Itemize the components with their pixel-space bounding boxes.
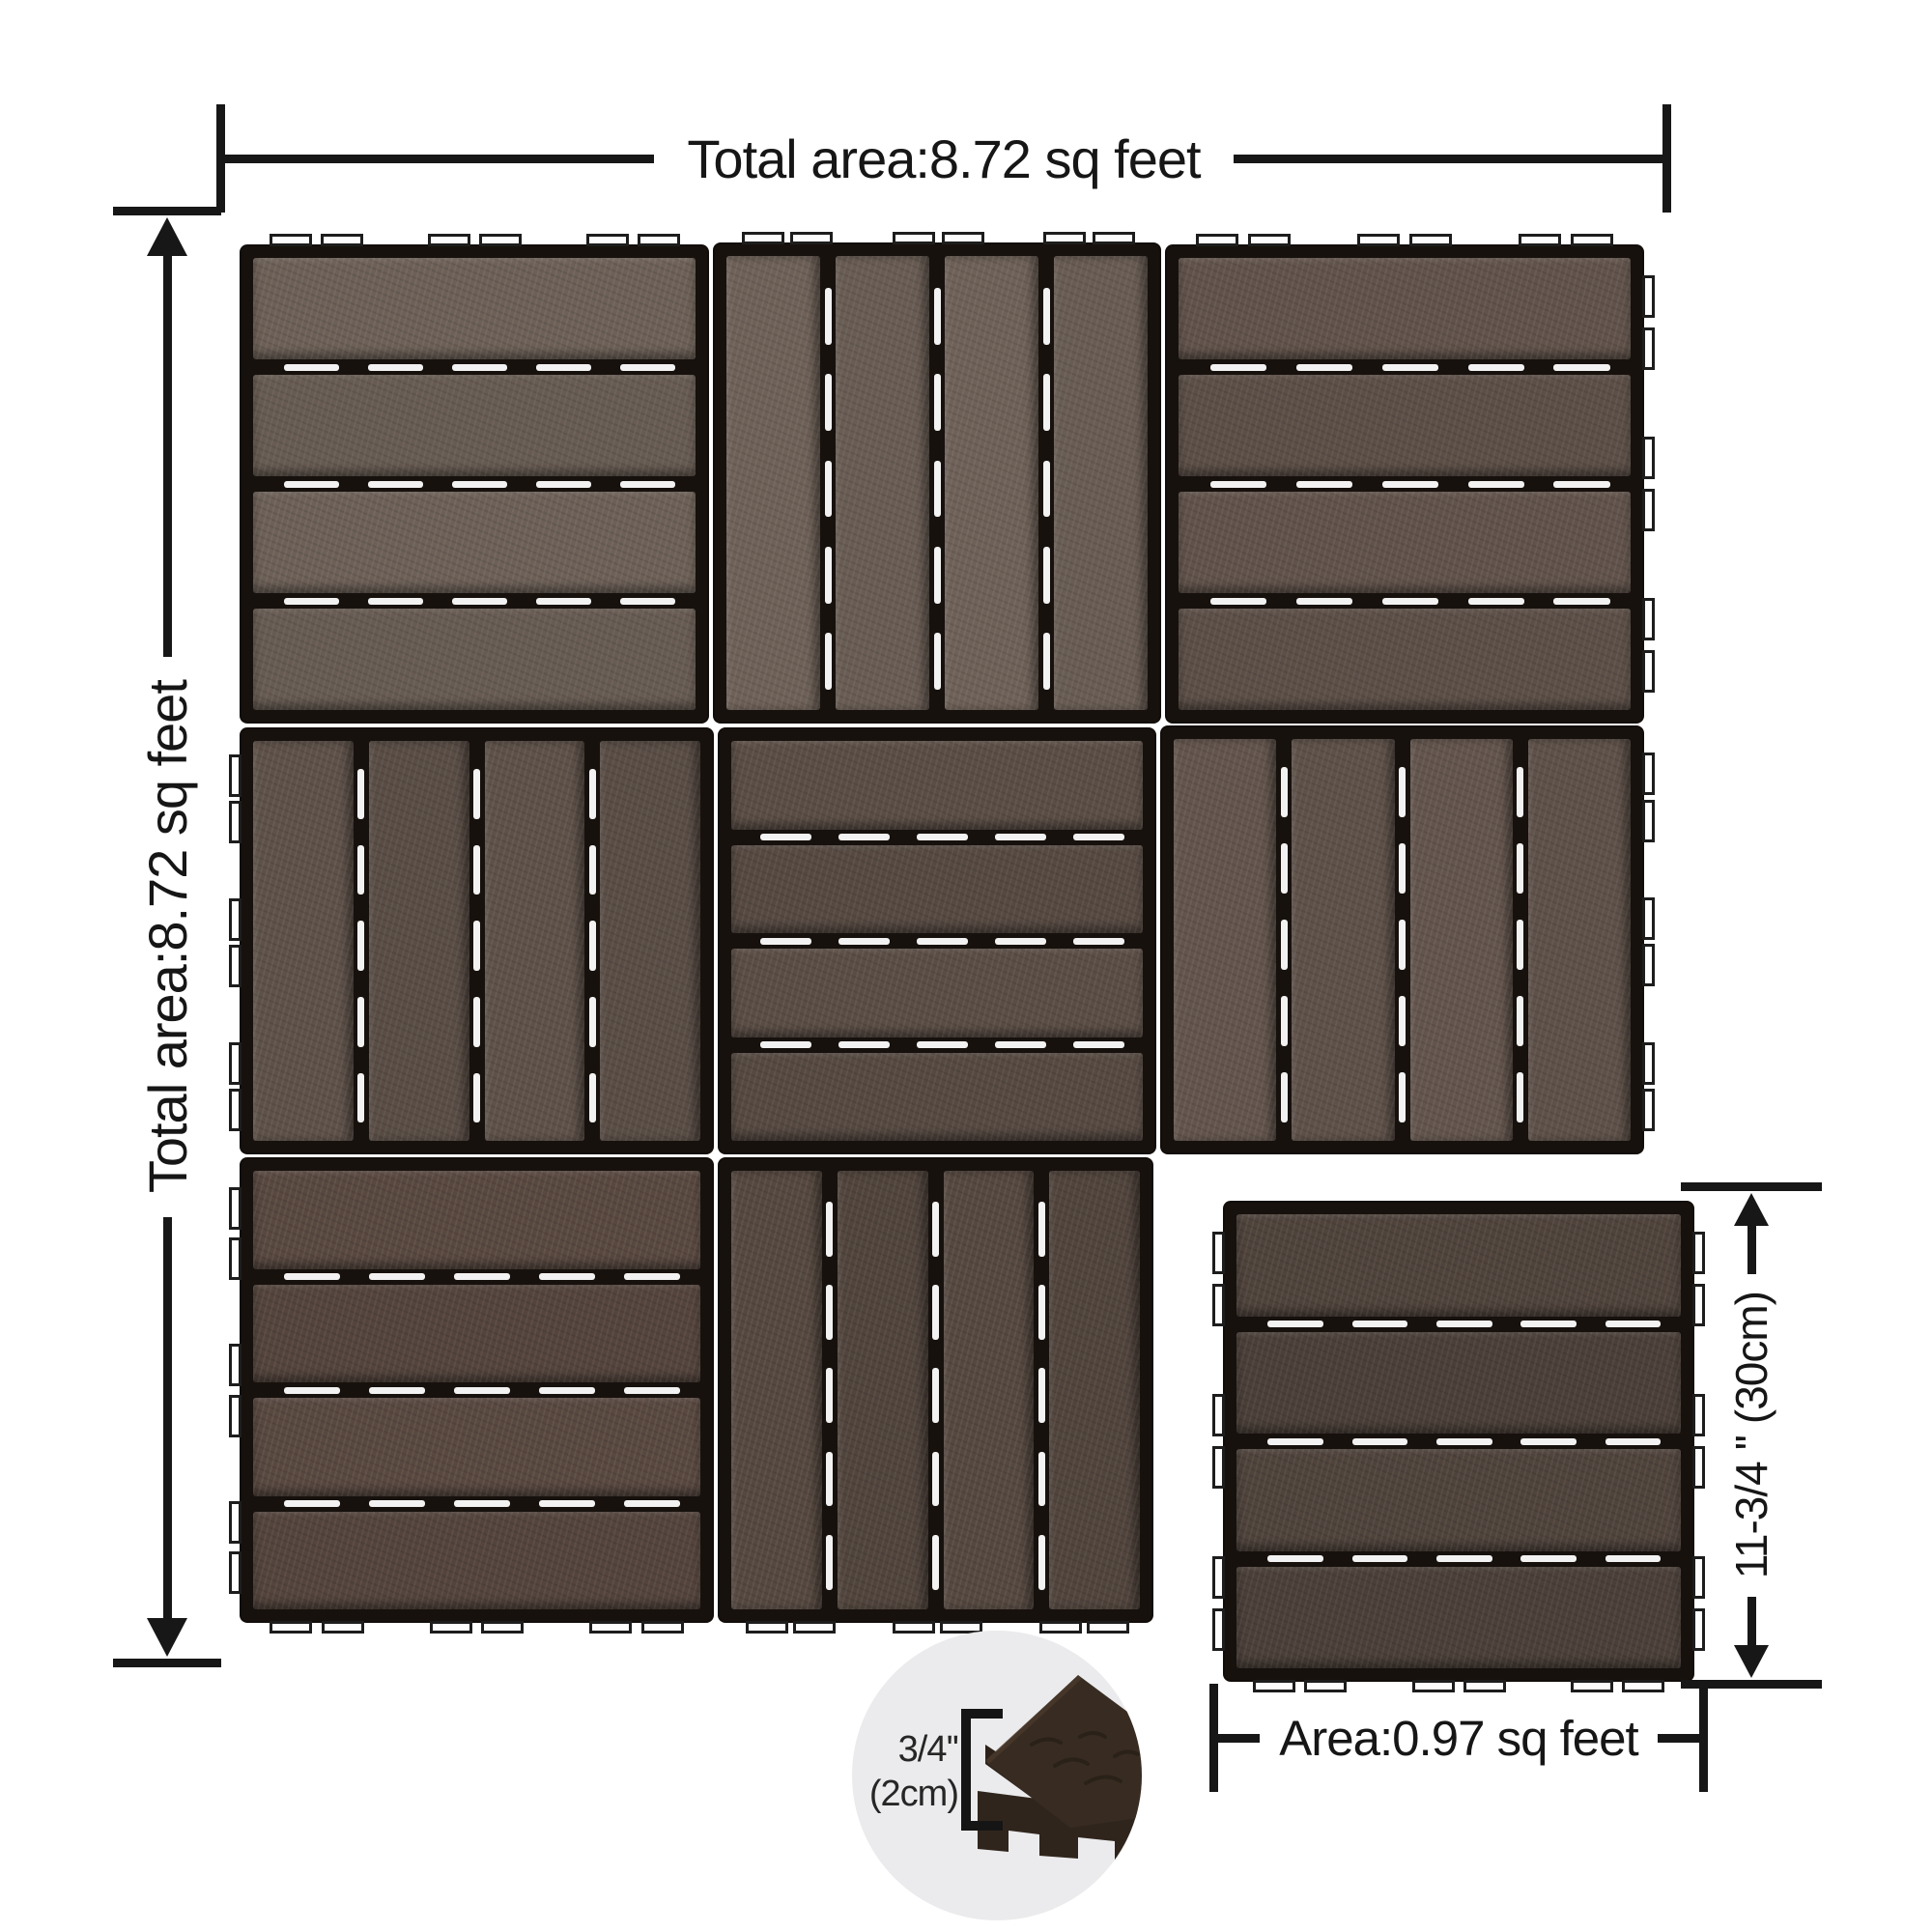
drain-slit — [473, 769, 480, 819]
drain-slit — [1468, 598, 1525, 605]
deck-tile-r1c2 — [715, 244, 1159, 722]
drain-slit — [1605, 1438, 1662, 1445]
connector-tab — [229, 1237, 241, 1280]
drain-slit — [284, 481, 339, 488]
drain-slit — [1517, 843, 1523, 894]
tile-slat — [253, 1398, 700, 1496]
tile-slat — [731, 741, 1143, 830]
connector-tab — [942, 232, 984, 244]
drain-slit — [1520, 1321, 1577, 1327]
tile-slat — [253, 1285, 700, 1383]
tile-height-label: 11-3/4 '' (30cm) — [1725, 1292, 1777, 1578]
drain-slit — [1267, 1321, 1323, 1327]
tile-slat — [945, 256, 1038, 710]
drain-slit — [624, 1500, 680, 1507]
drain-slit — [589, 921, 596, 971]
drain-slit — [620, 364, 675, 371]
dimension-line — [1234, 155, 1662, 163]
drain-slit — [826, 1452, 833, 1507]
connector-tab — [793, 1621, 836, 1634]
tile-slat — [1179, 492, 1631, 593]
drain-slit — [932, 1285, 939, 1340]
connector-tab — [1093, 232, 1135, 244]
drain-slit — [1073, 938, 1124, 945]
connector-tab — [742, 232, 784, 244]
total-area-top-dimension: Total area:8.72 sq feet — [216, 102, 1671, 214]
drain-slit — [357, 997, 364, 1047]
drain-slit — [1043, 547, 1050, 604]
drain-slit — [284, 1500, 340, 1507]
connector-tab — [481, 1621, 524, 1634]
tile-slat — [253, 1171, 700, 1269]
drain-slit — [452, 481, 507, 488]
connector-tab — [430, 1621, 472, 1634]
connector-tab — [1043, 232, 1086, 244]
connector-tab — [229, 1501, 241, 1544]
drain-slit — [1043, 633, 1050, 690]
drain-slit — [917, 938, 968, 945]
drain-slit — [1038, 1368, 1045, 1423]
connector-tab — [1642, 897, 1655, 940]
dimension-end-tick — [113, 207, 221, 215]
drain-slit — [1382, 598, 1439, 605]
dimension-end-tick — [1681, 1182, 1822, 1191]
drain-slit — [1517, 920, 1523, 970]
deck-tile-r2c3 — [1162, 727, 1642, 1152]
drain-slit — [473, 1073, 480, 1123]
drain-slit — [1399, 767, 1406, 817]
drain-slit — [1517, 996, 1523, 1046]
drain-slit — [1553, 364, 1610, 371]
tile-slat — [253, 741, 354, 1141]
connector-tab — [1642, 753, 1655, 795]
tile-slat — [1174, 739, 1276, 1141]
drain-slit — [825, 374, 832, 431]
drain-slit — [452, 598, 507, 605]
drain-slit — [1296, 364, 1353, 371]
deck-tile-dimension-diagram: Total area:8.72 sq feet Total area:8.72 … — [0, 0, 1932, 1932]
connector-tab — [229, 801, 241, 843]
drain-slit — [1043, 374, 1050, 431]
tile-slat — [1528, 739, 1631, 1141]
tile-slat — [253, 258, 696, 359]
dimension-line — [1747, 1597, 1756, 1645]
dimension-end-tick — [1209, 1684, 1218, 1792]
drain-slit — [825, 461, 832, 518]
drain-slit — [1043, 461, 1050, 518]
drain-slit — [1553, 598, 1610, 605]
drain-slit — [368, 364, 423, 371]
drain-slit — [539, 1387, 595, 1394]
drain-slit — [454, 1273, 510, 1280]
drain-slit — [1038, 1285, 1045, 1340]
drain-slit — [539, 1500, 595, 1507]
connector-tab — [479, 234, 522, 246]
connector-tab — [1642, 275, 1655, 318]
connector-tab — [1642, 327, 1655, 370]
drain-slit — [589, 845, 596, 895]
drain-slit — [1399, 920, 1406, 970]
drain-slit — [284, 1387, 340, 1394]
drain-slit — [934, 461, 941, 518]
dimension-end-tick — [216, 104, 225, 213]
connector-tab — [1196, 234, 1238, 246]
connector-tab — [322, 1621, 364, 1634]
drain-slit — [826, 1535, 833, 1590]
dimension-line — [225, 155, 654, 163]
connector-tab — [790, 232, 833, 244]
drain-slit — [1436, 1555, 1492, 1562]
drain-slit — [624, 1387, 680, 1394]
tile-slat — [600, 741, 700, 1141]
drain-slit — [760, 1041, 811, 1048]
drain-slit — [357, 1073, 364, 1123]
drain-slit — [539, 1273, 595, 1280]
tile-slat — [1410, 739, 1513, 1141]
tile-slat — [253, 492, 696, 593]
tile-slat — [731, 845, 1143, 934]
tile-slat — [944, 1171, 1035, 1609]
drain-slit — [1043, 288, 1050, 345]
tile-slat — [726, 256, 820, 710]
drain-slit — [825, 288, 832, 345]
drain-slit — [536, 481, 591, 488]
tile-area-dimension: Area:0.97 sq feet — [1209, 1681, 1708, 1795]
connector-tab — [1642, 489, 1655, 531]
connector-tab — [1642, 1089, 1655, 1131]
dimension-end-tick — [1662, 104, 1671, 213]
total-area-left-label: Total area:8.72 sq feet — [136, 680, 199, 1193]
drain-slit — [1073, 834, 1124, 840]
drain-slit — [1382, 364, 1439, 371]
connector-tab — [893, 232, 935, 244]
tile-slat — [1292, 739, 1394, 1141]
dimension-line — [163, 256, 172, 657]
drain-slit — [1281, 767, 1288, 817]
dimension-end-tick — [1699, 1684, 1708, 1792]
connector-tab — [1212, 1284, 1225, 1326]
connector-tab — [1212, 1446, 1225, 1489]
drain-slit — [917, 834, 968, 840]
connector-tab — [1642, 650, 1655, 693]
drain-slit — [917, 1041, 968, 1048]
deck-tile-r2c1 — [241, 729, 712, 1152]
connector-tab — [1212, 1394, 1225, 1436]
connector-tab — [229, 1042, 241, 1085]
drain-slit — [369, 1500, 425, 1507]
arrow-down-icon — [1734, 1645, 1769, 1678]
drain-slit — [284, 1273, 340, 1280]
drain-slit — [284, 598, 339, 605]
deck-tile-r3c1 — [241, 1159, 712, 1621]
drain-slit — [934, 633, 941, 690]
connector-tab — [1519, 234, 1561, 246]
deck-tile-r3c2 — [720, 1159, 1151, 1621]
connector-tab — [641, 1621, 684, 1634]
drain-slit — [357, 921, 364, 971]
drain-slit — [536, 364, 591, 371]
drain-slit — [1468, 364, 1525, 371]
tile-slat — [836, 256, 929, 710]
drain-slit — [284, 364, 339, 371]
drain-slit — [1038, 1452, 1045, 1507]
drain-slit — [1399, 996, 1406, 1046]
drain-slit — [369, 1273, 425, 1280]
tile-slat — [1179, 258, 1631, 359]
tile-slat — [369, 741, 469, 1141]
connector-tab — [589, 1621, 632, 1634]
drain-slit — [934, 547, 941, 604]
tile-slat — [731, 949, 1143, 1037]
tile-slat — [731, 1053, 1143, 1142]
connector-tab — [229, 1344, 241, 1386]
drain-slit — [1267, 1438, 1323, 1445]
deck-tile-single — [1225, 1203, 1692, 1680]
drain-slit — [825, 633, 832, 690]
drain-slit — [1210, 598, 1267, 605]
drain-slit — [932, 1368, 939, 1423]
drain-slit — [995, 938, 1046, 945]
drain-slit — [1296, 598, 1353, 605]
drain-slit — [1352, 1321, 1408, 1327]
tile-slat — [731, 1171, 822, 1609]
drain-slit — [1296, 481, 1353, 488]
connector-tab — [1642, 1042, 1655, 1085]
drain-slit — [1281, 996, 1288, 1046]
drain-slit — [1520, 1555, 1577, 1562]
drain-slit — [536, 598, 591, 605]
drain-slit — [1073, 1041, 1124, 1048]
drain-slit — [1382, 481, 1439, 488]
connector-tab — [229, 898, 241, 941]
arrow-down-icon — [147, 1618, 187, 1657]
connector-tab — [586, 234, 629, 246]
drain-slit — [1517, 1072, 1523, 1122]
tile-slat — [1179, 609, 1631, 710]
drain-slit — [825, 547, 832, 604]
connector-tab — [1642, 944, 1655, 986]
total-area-top-label: Total area:8.72 sq feet — [687, 128, 1200, 190]
drain-slit — [934, 374, 941, 431]
drain-slit — [995, 834, 1046, 840]
drain-slit — [1605, 1555, 1662, 1562]
arrow-up-icon — [147, 217, 187, 256]
connector-tab — [270, 234, 312, 246]
connector-tab — [1357, 234, 1400, 246]
tile-slat — [253, 1512, 700, 1610]
drain-slit — [826, 1285, 833, 1340]
drain-slit — [1038, 1202, 1045, 1257]
drain-slit — [473, 921, 480, 971]
drain-slit — [1553, 481, 1610, 488]
drain-slit — [620, 598, 675, 605]
drain-slit — [1605, 1321, 1662, 1327]
drain-slit — [1281, 1072, 1288, 1122]
connector-tab — [1642, 800, 1655, 842]
drain-slit — [932, 1452, 939, 1507]
connector-tab — [229, 1187, 241, 1230]
tile-slat — [253, 375, 696, 476]
tile-slat — [838, 1171, 928, 1609]
drain-slit — [1352, 1438, 1408, 1445]
connector-tab — [1248, 234, 1291, 246]
drain-slit — [838, 1041, 890, 1048]
total-area-left-dimension: Total area:8.72 sq feet — [113, 207, 221, 1667]
drain-slit — [1436, 1321, 1492, 1327]
drain-slit — [473, 845, 480, 895]
connector-tab — [229, 945, 241, 987]
drain-slit — [1520, 1438, 1577, 1445]
arrow-up-icon — [1734, 1193, 1769, 1226]
drain-slit — [1517, 767, 1523, 817]
drain-slit — [826, 1202, 833, 1257]
tile-height-dimension: 11-3/4 '' (30cm) — [1681, 1182, 1822, 1689]
drain-slit — [473, 997, 480, 1047]
drain-slit — [1399, 1072, 1406, 1122]
drain-slit — [1436, 1438, 1492, 1445]
tile-slat — [1236, 1449, 1681, 1551]
drain-slit — [934, 288, 941, 345]
dimension-line — [1658, 1734, 1699, 1743]
drain-slit — [1038, 1535, 1045, 1590]
drain-slit — [368, 481, 423, 488]
dimension-end-tick — [113, 1659, 221, 1667]
drain-slit — [1281, 920, 1288, 970]
connector-tab — [270, 1621, 312, 1634]
dimension-line — [1747, 1226, 1756, 1274]
drain-slit — [838, 834, 890, 840]
connector-tab — [1409, 234, 1452, 246]
connector-tab — [1642, 437, 1655, 479]
drain-slit — [995, 1041, 1046, 1048]
drain-slit — [369, 1387, 425, 1394]
drain-slit — [1267, 1555, 1323, 1562]
connector-tab — [229, 1089, 241, 1131]
connector-tab — [229, 1395, 241, 1437]
connector-tab — [229, 1551, 241, 1594]
drain-slit — [589, 997, 596, 1047]
tile-slat — [1049, 1171, 1140, 1609]
drain-slit — [826, 1368, 833, 1423]
drain-slit — [838, 938, 890, 945]
drain-slit — [932, 1535, 939, 1590]
drain-slit — [760, 938, 811, 945]
connector-tab — [1212, 1232, 1225, 1274]
drain-slit — [624, 1273, 680, 1280]
tile-slat — [253, 609, 696, 710]
drain-slit — [1468, 481, 1525, 488]
connector-tab — [638, 234, 680, 246]
connector-tab — [229, 754, 241, 797]
tile-slat — [1054, 256, 1148, 710]
drain-slit — [368, 598, 423, 605]
tile-area-label: Area:0.97 sq feet — [1279, 1710, 1637, 1767]
drain-slit — [620, 481, 675, 488]
drain-slit — [589, 769, 596, 819]
drain-slit — [357, 769, 364, 819]
thickness-inches-label: 3/4'' — [823, 1729, 958, 1771]
drain-slit — [760, 834, 811, 840]
drain-slit — [1210, 481, 1267, 488]
drain-slit — [1399, 843, 1406, 894]
drain-slit — [452, 364, 507, 371]
connector-tab — [746, 1621, 788, 1634]
tile-slat — [1236, 1567, 1681, 1669]
deck-tile-r2c2 — [720, 729, 1154, 1152]
tile-slat — [485, 741, 585, 1141]
tile-slat — [1236, 1332, 1681, 1435]
deck-tile-r1c3 — [1167, 246, 1642, 722]
deck-tile-r1c1 — [241, 246, 707, 722]
thickness-cm-label: (2cm) — [823, 1774, 958, 1815]
tile-slat — [1236, 1214, 1681, 1317]
connector-tab — [1642, 598, 1655, 640]
drain-slit — [1352, 1555, 1408, 1562]
dimension-line — [1218, 1734, 1260, 1743]
drain-slit — [589, 1073, 596, 1123]
drain-slit — [454, 1500, 510, 1507]
drain-slit — [357, 845, 364, 895]
tile-slat — [1179, 375, 1631, 476]
drain-slit — [454, 1387, 510, 1394]
connector-tab — [321, 234, 363, 246]
connector-tab — [1571, 234, 1613, 246]
drain-slit — [932, 1202, 939, 1257]
dimension-line — [163, 1217, 172, 1618]
connector-tab — [1212, 1608, 1225, 1651]
drain-slit — [1210, 364, 1267, 371]
connector-tab — [428, 234, 470, 246]
connector-tab — [1212, 1556, 1225, 1599]
drain-slit — [1281, 843, 1288, 894]
